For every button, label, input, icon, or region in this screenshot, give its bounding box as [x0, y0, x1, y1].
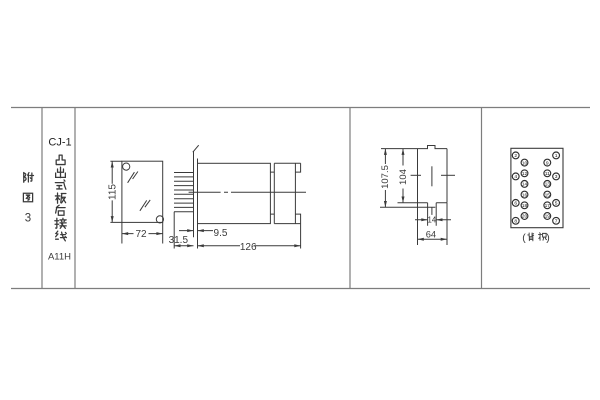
svg-text:19: 19	[545, 214, 551, 220]
svg-text:): )	[546, 232, 550, 244]
svg-text:72: 72	[135, 229, 147, 240]
svg-text:104: 104	[398, 169, 409, 185]
svg-text:(: (	[522, 232, 526, 244]
svg-text:20: 20	[522, 214, 528, 220]
svg-text:126: 126	[240, 242, 257, 253]
svg-text:10: 10	[522, 160, 528, 166]
svg-text:107.5: 107.5	[380, 165, 391, 189]
svg-text:31.5: 31.5	[169, 235, 189, 246]
svg-text:115: 115	[107, 184, 118, 200]
svg-text:8: 8	[514, 219, 517, 225]
svg-text:3: 3	[555, 174, 558, 180]
svg-text:1: 1	[555, 153, 558, 159]
svg-text:13: 13	[545, 182, 551, 188]
svg-text:17: 17	[545, 203, 551, 209]
svg-text:3: 3	[25, 213, 31, 225]
svg-text:4: 4	[514, 174, 517, 180]
svg-text:14: 14	[522, 182, 528, 188]
svg-text:A11H: A11H	[48, 252, 71, 263]
svg-text:14: 14	[428, 215, 437, 224]
svg-text:12: 12	[522, 171, 528, 177]
svg-text:18: 18	[522, 203, 528, 209]
svg-text:7: 7	[555, 219, 558, 225]
svg-text:CJ-1: CJ-1	[48, 136, 71, 148]
svg-text:16: 16	[522, 192, 528, 198]
svg-text:64: 64	[426, 230, 436, 240]
svg-text:11: 11	[545, 171, 550, 177]
svg-text:15: 15	[545, 192, 551, 198]
svg-text:9.5: 9.5	[214, 228, 228, 239]
svg-text:2: 2	[514, 153, 517, 159]
svg-text:9: 9	[546, 160, 549, 166]
svg-text:5: 5	[555, 201, 558, 207]
svg-text:6: 6	[514, 201, 517, 207]
